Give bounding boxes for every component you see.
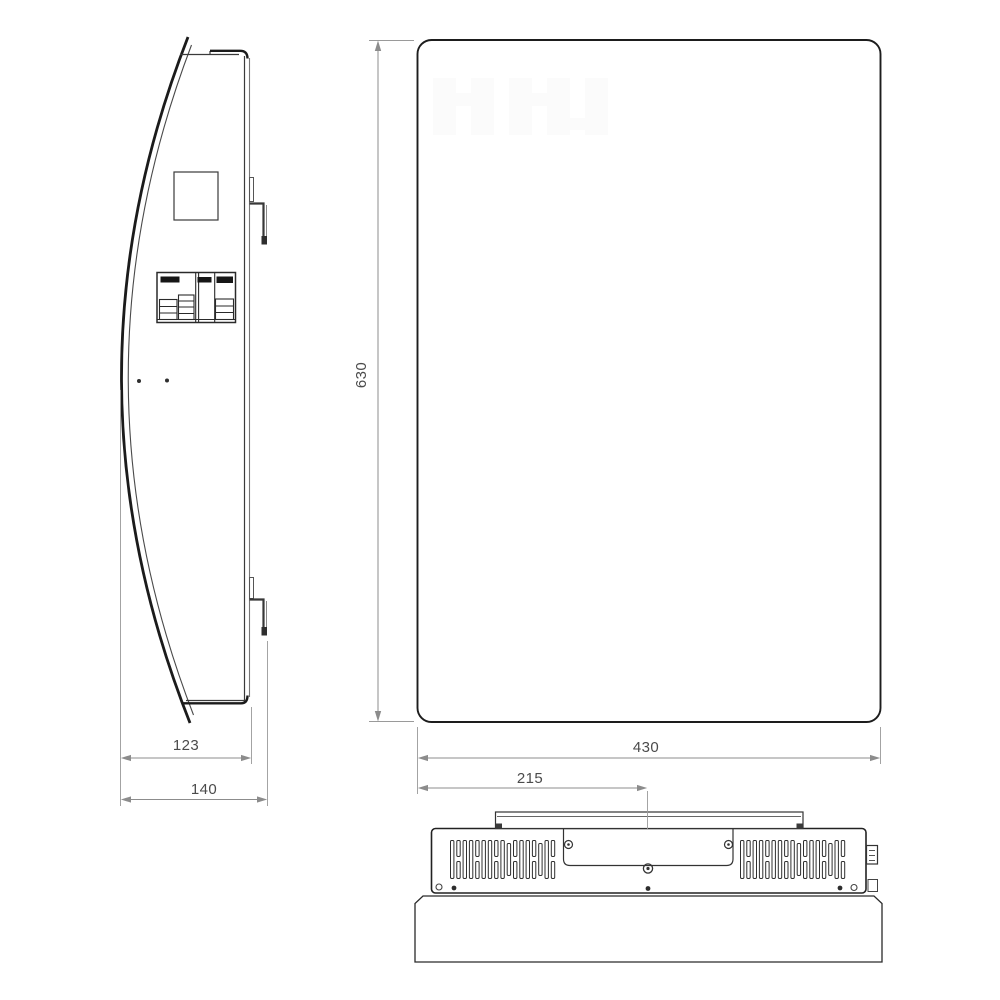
- dimension-630: [369, 41, 414, 722]
- front-view: [418, 40, 881, 722]
- drawing-canvas: [0, 0, 1000, 1000]
- display-window: [174, 172, 218, 220]
- chassis-dot: [838, 886, 843, 891]
- chassis-dot: [646, 886, 651, 891]
- chassis-dot: [452, 886, 457, 891]
- dim-label-630: 630: [353, 353, 371, 397]
- breaker-terminal: [216, 299, 234, 320]
- drawing-page: 630 123 140 430 215: [0, 0, 1000, 1000]
- dimension-430: [418, 727, 881, 794]
- side-view: [121, 37, 267, 723]
- breaker-toggle: [198, 277, 212, 283]
- breaker-toggle: [217, 277, 234, 284]
- mounting-plate: [496, 812, 804, 829]
- front-panel-edge: [415, 896, 882, 962]
- panel-dot: [165, 379, 169, 383]
- dim-label-140: 140: [182, 781, 226, 799]
- mounting-bracket-bottom: [250, 578, 268, 636]
- circuit-breaker-block: [157, 273, 236, 323]
- dim-label-215: 215: [508, 770, 552, 788]
- panel-dot: [137, 379, 141, 383]
- breaker-terminal: [160, 300, 178, 320]
- front-panel: [418, 40, 881, 722]
- mounting-bracket-top: [250, 178, 268, 245]
- dim-label-430: 430: [624, 739, 668, 757]
- breaker-toggle: [161, 277, 180, 283]
- curved-front-panel: [121, 37, 190, 723]
- side-bottom-lip: [183, 696, 248, 704]
- terminal-connector: [867, 846, 878, 892]
- dim-label-123: 123: [164, 737, 208, 755]
- bottom-view: [415, 812, 882, 962]
